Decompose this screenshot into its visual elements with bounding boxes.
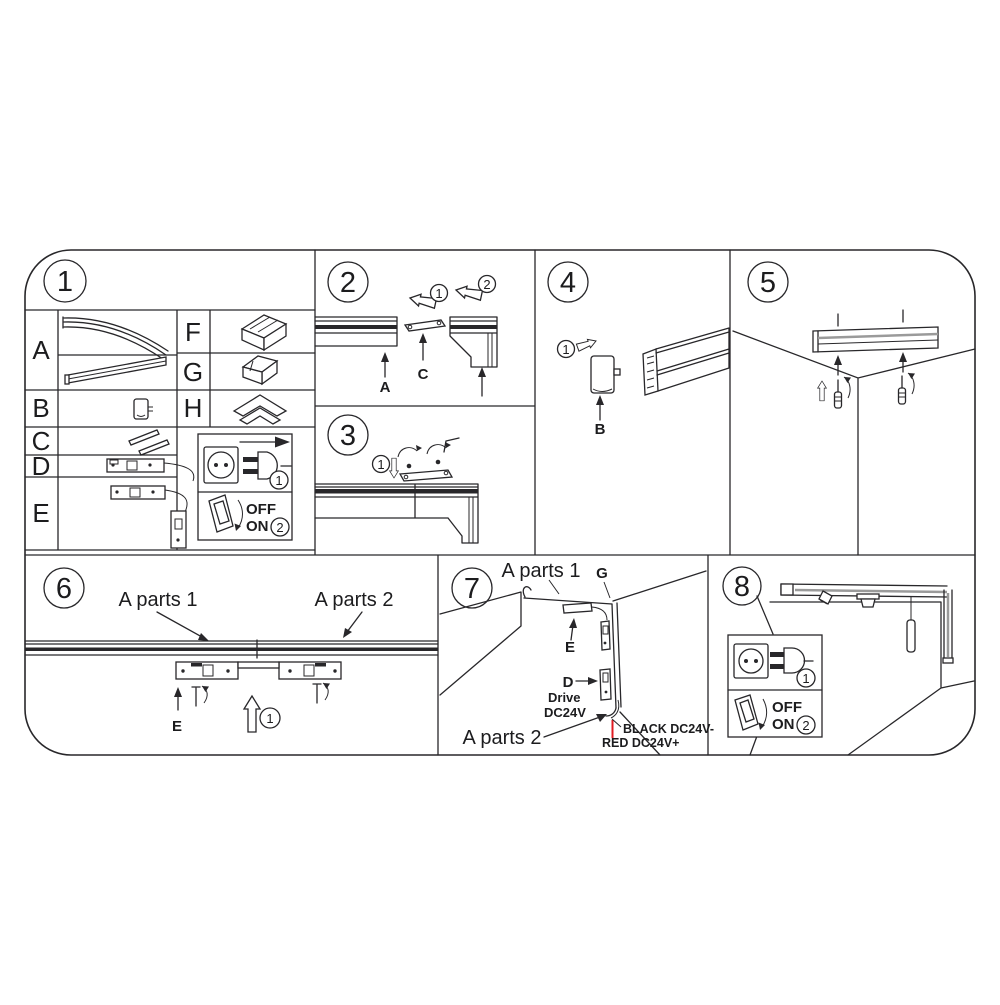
off-label: OFF — [246, 501, 276, 518]
label-e: E — [565, 639, 575, 656]
label-c: C — [418, 366, 429, 383]
step-2-number: 2 — [276, 520, 283, 535]
a-parts-1-label: A parts 1 — [119, 589, 198, 611]
label-a: A — [380, 379, 391, 396]
sheet-border — [25, 250, 975, 755]
power-legend-box: 1 OFF ON 2 — [728, 635, 822, 737]
panel-number: 6 — [56, 573, 72, 605]
a-parts-1-label: A parts 1 — [502, 560, 581, 582]
panel-number: 1 — [57, 266, 73, 298]
step-1-number: 1 — [266, 711, 273, 726]
red-wire-label: RED DC24V+ — [602, 736, 679, 750]
step-2-number: 2 — [483, 277, 490, 292]
part-letter-h: H — [184, 393, 203, 423]
drive-label-line2: DC24V — [544, 705, 586, 720]
part-letter-e: E — [32, 498, 49, 528]
part-letter-f: F — [185, 317, 201, 347]
step-1-number: 1 — [562, 342, 569, 357]
label-e: E — [172, 718, 182, 735]
panel-number: 8 — [734, 571, 750, 603]
step-1-number: 1 — [435, 286, 442, 301]
part-letter-a: A — [32, 335, 50, 365]
a-parts-2-label: A parts 2 — [463, 727, 542, 749]
panel-number: 4 — [560, 267, 576, 299]
d-driver-drawing — [600, 669, 611, 700]
socket-icon — [204, 447, 238, 483]
part-letter-g: G — [183, 357, 203, 387]
drive-label-line1: Drive — [548, 690, 581, 705]
label-d: D — [563, 674, 574, 691]
step-1-number: 1 — [377, 457, 384, 472]
panel-number: 3 — [340, 420, 356, 452]
label-b: B — [595, 421, 606, 438]
track-bar-drawing — [813, 327, 938, 352]
power-legend-box: 1 OFF ON 2 — [198, 434, 292, 540]
panel-number: 2 — [340, 267, 356, 299]
step-2-number: 2 — [802, 718, 809, 733]
a-parts-2-label: A parts 2 — [315, 589, 394, 611]
on-label: ON — [246, 518, 269, 535]
step-1-number: 1 — [802, 671, 809, 686]
part-letter-d: D — [32, 451, 51, 481]
label-g: G — [596, 565, 608, 582]
instruction-sheet: 1 A B C D E F G H — [0, 0, 1000, 1000]
socket-icon — [734, 644, 768, 678]
on-label: ON — [772, 716, 795, 733]
black-wire-label: BLACK DC24V- — [623, 722, 714, 736]
step-1-number: 1 — [275, 473, 282, 488]
off-label: OFF — [772, 699, 802, 716]
panel-number: 5 — [760, 267, 776, 299]
assembly-diagram: 1 A B C D E F G H — [0, 0, 1000, 1000]
part-letter-b: B — [32, 393, 49, 423]
panel-number: 7 — [464, 573, 480, 605]
